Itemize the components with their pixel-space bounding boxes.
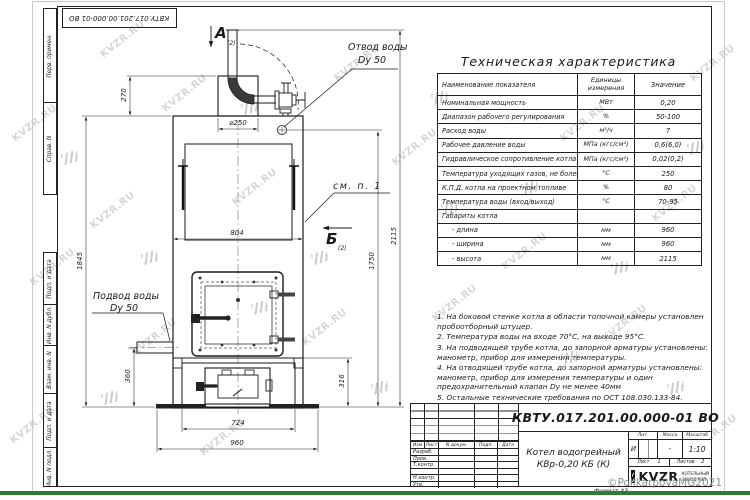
note-line: 2. Температура воды на входе 70°С, на вы… xyxy=(437,332,713,342)
note-line: 1. На боковой стенке котла в области топ… xyxy=(437,312,713,331)
change-log-grid xyxy=(411,404,518,441)
table-row: Диапазон рабочего регулирования % 50-100 xyxy=(438,110,701,124)
table-row: Номинальная мощность МВт 0,20 xyxy=(438,96,701,110)
table-row: Рабочее давление воды МПа (кгс/см²) 0,6(… xyxy=(438,139,701,153)
dim-1845: 1845 xyxy=(76,246,84,276)
outlet-label: Отвод воды xyxy=(348,42,408,53)
change-log-header: Изм Лист N докум. Подп. Дата xyxy=(411,441,518,449)
table-row: - ширина мм 960 xyxy=(438,238,701,252)
inlet-dn-label: Dу 50 xyxy=(110,303,138,314)
dim-360: 360 xyxy=(124,361,132,391)
see-note-label: см. п. 1 xyxy=(333,181,382,192)
spec-header-units: Единицы измерения xyxy=(578,74,635,95)
lit-mass-scale-header: Лит. Масса Масштаб xyxy=(629,432,711,440)
copyright-watermark: ©PolikarpovaMG2021 xyxy=(607,477,722,489)
outlet-leader xyxy=(284,69,398,127)
dim-960: 960 xyxy=(217,439,257,447)
spec-header-value: Значение xyxy=(635,74,701,95)
dim-250: ⌀250 xyxy=(218,119,258,127)
document-designation: КВТУ.017.201.00.000-01 ВО xyxy=(520,404,711,431)
bottom-green-strip xyxy=(0,491,750,495)
flue-pipe xyxy=(226,30,239,78)
outlet-leader-mark xyxy=(278,126,287,135)
sheet-numbers: Лист1 Листов2 xyxy=(629,459,711,467)
upper-panel xyxy=(185,144,292,240)
table-row: Гидравлическое сопротивление котла МПа (… xyxy=(438,153,701,167)
title-block: Изм Лист N докум. Подп. Дата Разраб. Про… xyxy=(410,403,712,487)
dim-1750: 1750 xyxy=(368,246,376,276)
spec-header-name: Наименование показателя xyxy=(438,74,578,95)
flue-elbow xyxy=(228,78,254,104)
table-row: К.П.Д. котла на проектном топливе % 80 xyxy=(438,181,701,195)
table-row: Расход воды м³/ч 7 xyxy=(438,124,701,138)
table-row: Температура воды (вход/выход) °С 70-95 xyxy=(438,195,701,209)
technical-notes: 1. На боковой стенке котла в области топ… xyxy=(437,312,713,404)
drawing-sheet: { "watermark": { "text": "KVZR.RU", "cop… xyxy=(0,0,750,500)
spec-table-title: Техническая характеристика xyxy=(437,54,700,69)
dim-2115: 2115 xyxy=(390,221,398,251)
scale-cell: 1:10 xyxy=(683,440,711,458)
table-row: - высота мм 2115 xyxy=(438,252,701,265)
note-line: 5. Остальные технические требования по О… xyxy=(437,393,713,403)
view-b-subscript: (2) xyxy=(338,245,347,252)
table-row: - длина мм 960 xyxy=(438,224,701,238)
view-b-label: Б xyxy=(326,230,337,248)
outlet-valve xyxy=(275,83,305,116)
panel-bolts xyxy=(178,159,299,210)
table-row: Габариты котла xyxy=(438,210,701,224)
inlet-pipe xyxy=(130,342,180,353)
title-block-left: Изм Лист N докум. Подп. Дата Разраб. Про… xyxy=(411,404,519,486)
dim-724: 724 xyxy=(218,419,258,427)
outlet-dn-label: Dу 50 xyxy=(358,55,386,66)
ash-door xyxy=(196,368,272,404)
lit-cell: И xyxy=(629,440,658,458)
signature-rows: Разраб. Пров. Т.контр. Н.контр. Утв. xyxy=(411,449,518,488)
lit-mass-scale-values: И - 1:10 xyxy=(629,440,711,459)
see-note-leader xyxy=(305,193,390,222)
mass-cell: - xyxy=(658,440,683,458)
note-line: 3. На подводящей трубе котла, до запорно… xyxy=(437,343,713,362)
table-row: Температура уходящих газов, не более °С … xyxy=(438,167,701,181)
inlet-leader xyxy=(92,313,170,341)
inlet-label: Подвод воды xyxy=(93,291,159,302)
spec-header-row: Наименование показателя Единицы измерени… xyxy=(438,74,701,96)
note-line: 4. На отводящей трубе котла, до запорной… xyxy=(437,363,713,392)
section-a-label: А xyxy=(215,24,227,42)
dim-270: 270 xyxy=(120,80,128,110)
spec-table: Наименование показателя Единицы измерени… xyxy=(437,73,702,266)
outlet-pipe xyxy=(254,96,276,103)
fire-door xyxy=(191,272,295,356)
section-a-subscript: (2) xyxy=(227,40,236,47)
dim-316: 316 xyxy=(338,366,346,396)
dim-804: 804 xyxy=(217,229,257,237)
